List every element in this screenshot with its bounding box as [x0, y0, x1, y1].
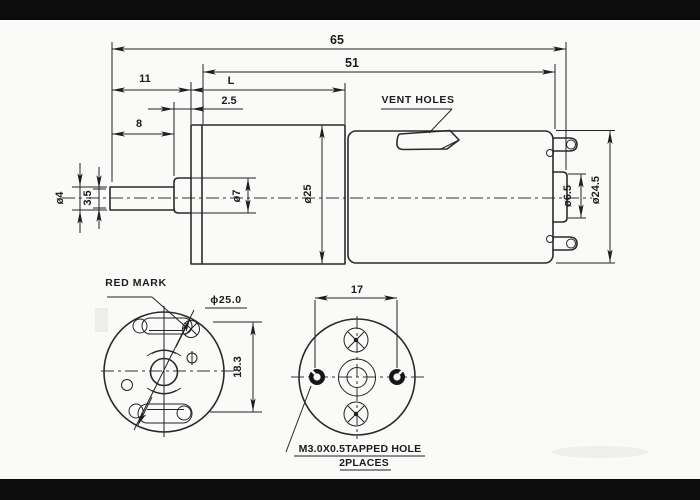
- vent-holes-callout: VENT HOLES: [381, 94, 455, 133]
- dim-shaft-exposed: 8: [112, 118, 174, 134]
- front-view-gearbox-face: 18.3 ϕ25.0 RED MARK: [101, 277, 262, 437]
- dim-overall-length: 65: [112, 33, 566, 182]
- scan-artifact: [552, 446, 648, 458]
- dim-motor-diameter-value: ø24.5: [590, 176, 602, 204]
- motor-can: [348, 131, 553, 263]
- dim-gearbox-length: L: [191, 75, 345, 124]
- dim-body-length-value: 51: [345, 56, 359, 70]
- dim-rear-boss-diameter-value: ø6.5: [562, 185, 574, 207]
- dim-hub-protrusion-value: 2.5: [221, 95, 236, 107]
- dim-rear-boss-diameter: ø6.5: [562, 174, 586, 218]
- vent-slot: [397, 131, 459, 150]
- dim-gearbox-diameter: ø25: [302, 126, 322, 264]
- pin-hole-left: [122, 380, 133, 391]
- bottom-letterbox-bar: [0, 479, 700, 500]
- dim-hub-diameter-value: ø7: [231, 190, 243, 203]
- hub-extension-lines: [191, 178, 256, 213]
- dim-hub-protrusion: 2.5: [148, 95, 243, 176]
- dim-shaft-exposed-value: 8: [136, 118, 142, 130]
- tapped-hole-note-line2: 2PLACES: [339, 457, 389, 469]
- dim-body-length: 51: [203, 56, 555, 129]
- dim-tapped-hole-spacing-value: 17: [351, 284, 363, 296]
- dim-face-diameter-value: ϕ25.0: [210, 294, 241, 306]
- drawing-sheet: 65 51 11 L 2.5 8: [0, 0, 700, 500]
- dim-overall-length-value: 65: [330, 33, 344, 47]
- screw-bottom: [344, 402, 368, 426]
- dim-shaft-flat-value: 3.5: [82, 190, 94, 205]
- dim-shaft-to-face-value: 11: [139, 73, 151, 85]
- gear-motor-dimension-drawing: 65 51 11 L 2.5 8: [0, 0, 700, 500]
- dim-gearbox-diameter-value: ø25: [302, 185, 314, 204]
- tapped-hole-note: M3.0X0.5TAPPED HOLE 2PLACES: [286, 386, 425, 470]
- bottom-right-hole: [177, 406, 191, 420]
- tapped-hole-left: [309, 369, 325, 385]
- top-left-hole: [133, 319, 147, 333]
- dim-hub-diameter: ø7: [231, 179, 248, 213]
- scan-artifact: [95, 308, 108, 332]
- dim-shaft-diameter-value: ø4: [54, 191, 66, 205]
- dim-shaft-to-face: 11: [112, 73, 191, 90]
- red-mark-label: RED MARK: [105, 277, 166, 289]
- tapped-hole-right: [389, 369, 405, 385]
- dim-slot-spacing-value: 18.3: [232, 356, 244, 377]
- tapped-hole-note-line1: M3.0X0.5TAPPED HOLE: [299, 443, 422, 455]
- rear-view-motor-end: 17 M3.0X0.5TAPPED HOLE 2PLACES: [286, 284, 425, 470]
- vent-holes-label: VENT HOLES: [381, 94, 454, 106]
- terminal-bottom: [547, 236, 578, 251]
- bearing-hub: [174, 178, 191, 213]
- screw-top: [344, 328, 368, 352]
- side-view-motor: 65 51 11 L 2.5 8: [54, 33, 615, 264]
- top-letterbox-bar: [0, 0, 700, 20]
- dim-gearbox-length-value: L: [228, 75, 235, 87]
- terminal-top: [547, 138, 578, 157]
